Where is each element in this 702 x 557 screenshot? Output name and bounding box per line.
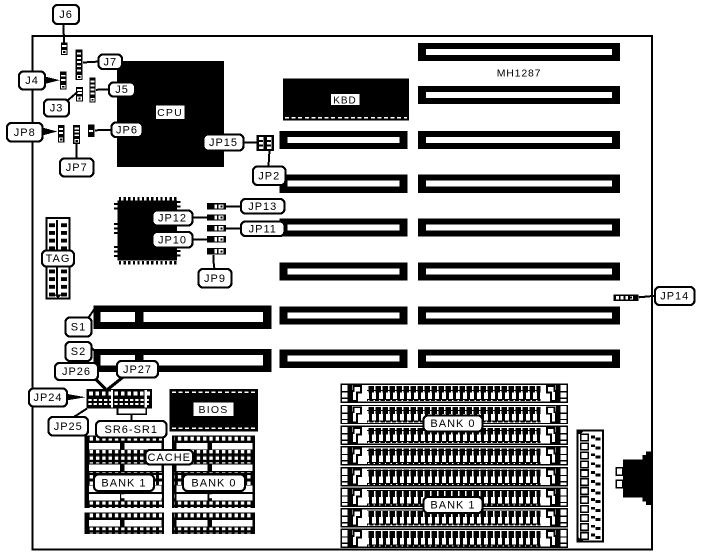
svg-text:JP8: JP8: [14, 127, 36, 139]
svg-text:J4: J4: [25, 75, 39, 87]
svg-text:BANK 1: BANK 1: [430, 500, 475, 512]
svg-text:JP24: JP24: [33, 392, 62, 404]
svg-text:J3: J3: [50, 103, 64, 115]
svg-text:JP26: JP26: [62, 366, 91, 378]
svg-text:JP25: JP25: [54, 421, 83, 433]
svg-text:S1: S1: [71, 322, 86, 334]
svg-text:J7: J7: [103, 57, 117, 69]
svg-text:JP12: JP12: [158, 213, 187, 225]
svg-text:BANK 0: BANK 0: [430, 418, 475, 430]
svg-text:JP7: JP7: [66, 162, 88, 174]
svg-text:JP27: JP27: [123, 364, 152, 376]
svg-text:MH1287: MH1287: [497, 68, 542, 80]
svg-text:CACHE: CACHE: [147, 452, 191, 464]
svg-text:BANK 0: BANK 0: [191, 478, 236, 490]
svg-text:JP11: JP11: [249, 224, 277, 236]
svg-text:JP14: JP14: [660, 291, 689, 303]
svg-text:TAG: TAG: [46, 253, 71, 265]
svg-text:J6: J6: [59, 9, 73, 21]
svg-text:BIOS: BIOS: [199, 404, 229, 416]
svg-text:JP2: JP2: [258, 171, 280, 183]
svg-text:S2: S2: [71, 346, 86, 358]
svg-text:JP6: JP6: [116, 125, 138, 137]
svg-text:BANK 1: BANK 1: [101, 478, 146, 490]
svg-text:SR6-SR1: SR6-SR1: [105, 424, 158, 436]
svg-text:JP9: JP9: [204, 273, 226, 285]
svg-text:J5: J5: [115, 84, 129, 96]
svg-text:KBD: KBD: [333, 95, 357, 106]
svg-text:JP10: JP10: [158, 235, 187, 247]
svg-text:CPU: CPU: [157, 107, 183, 119]
svg-text:JP15: JP15: [209, 137, 238, 149]
svg-text:JP13: JP13: [248, 201, 277, 213]
